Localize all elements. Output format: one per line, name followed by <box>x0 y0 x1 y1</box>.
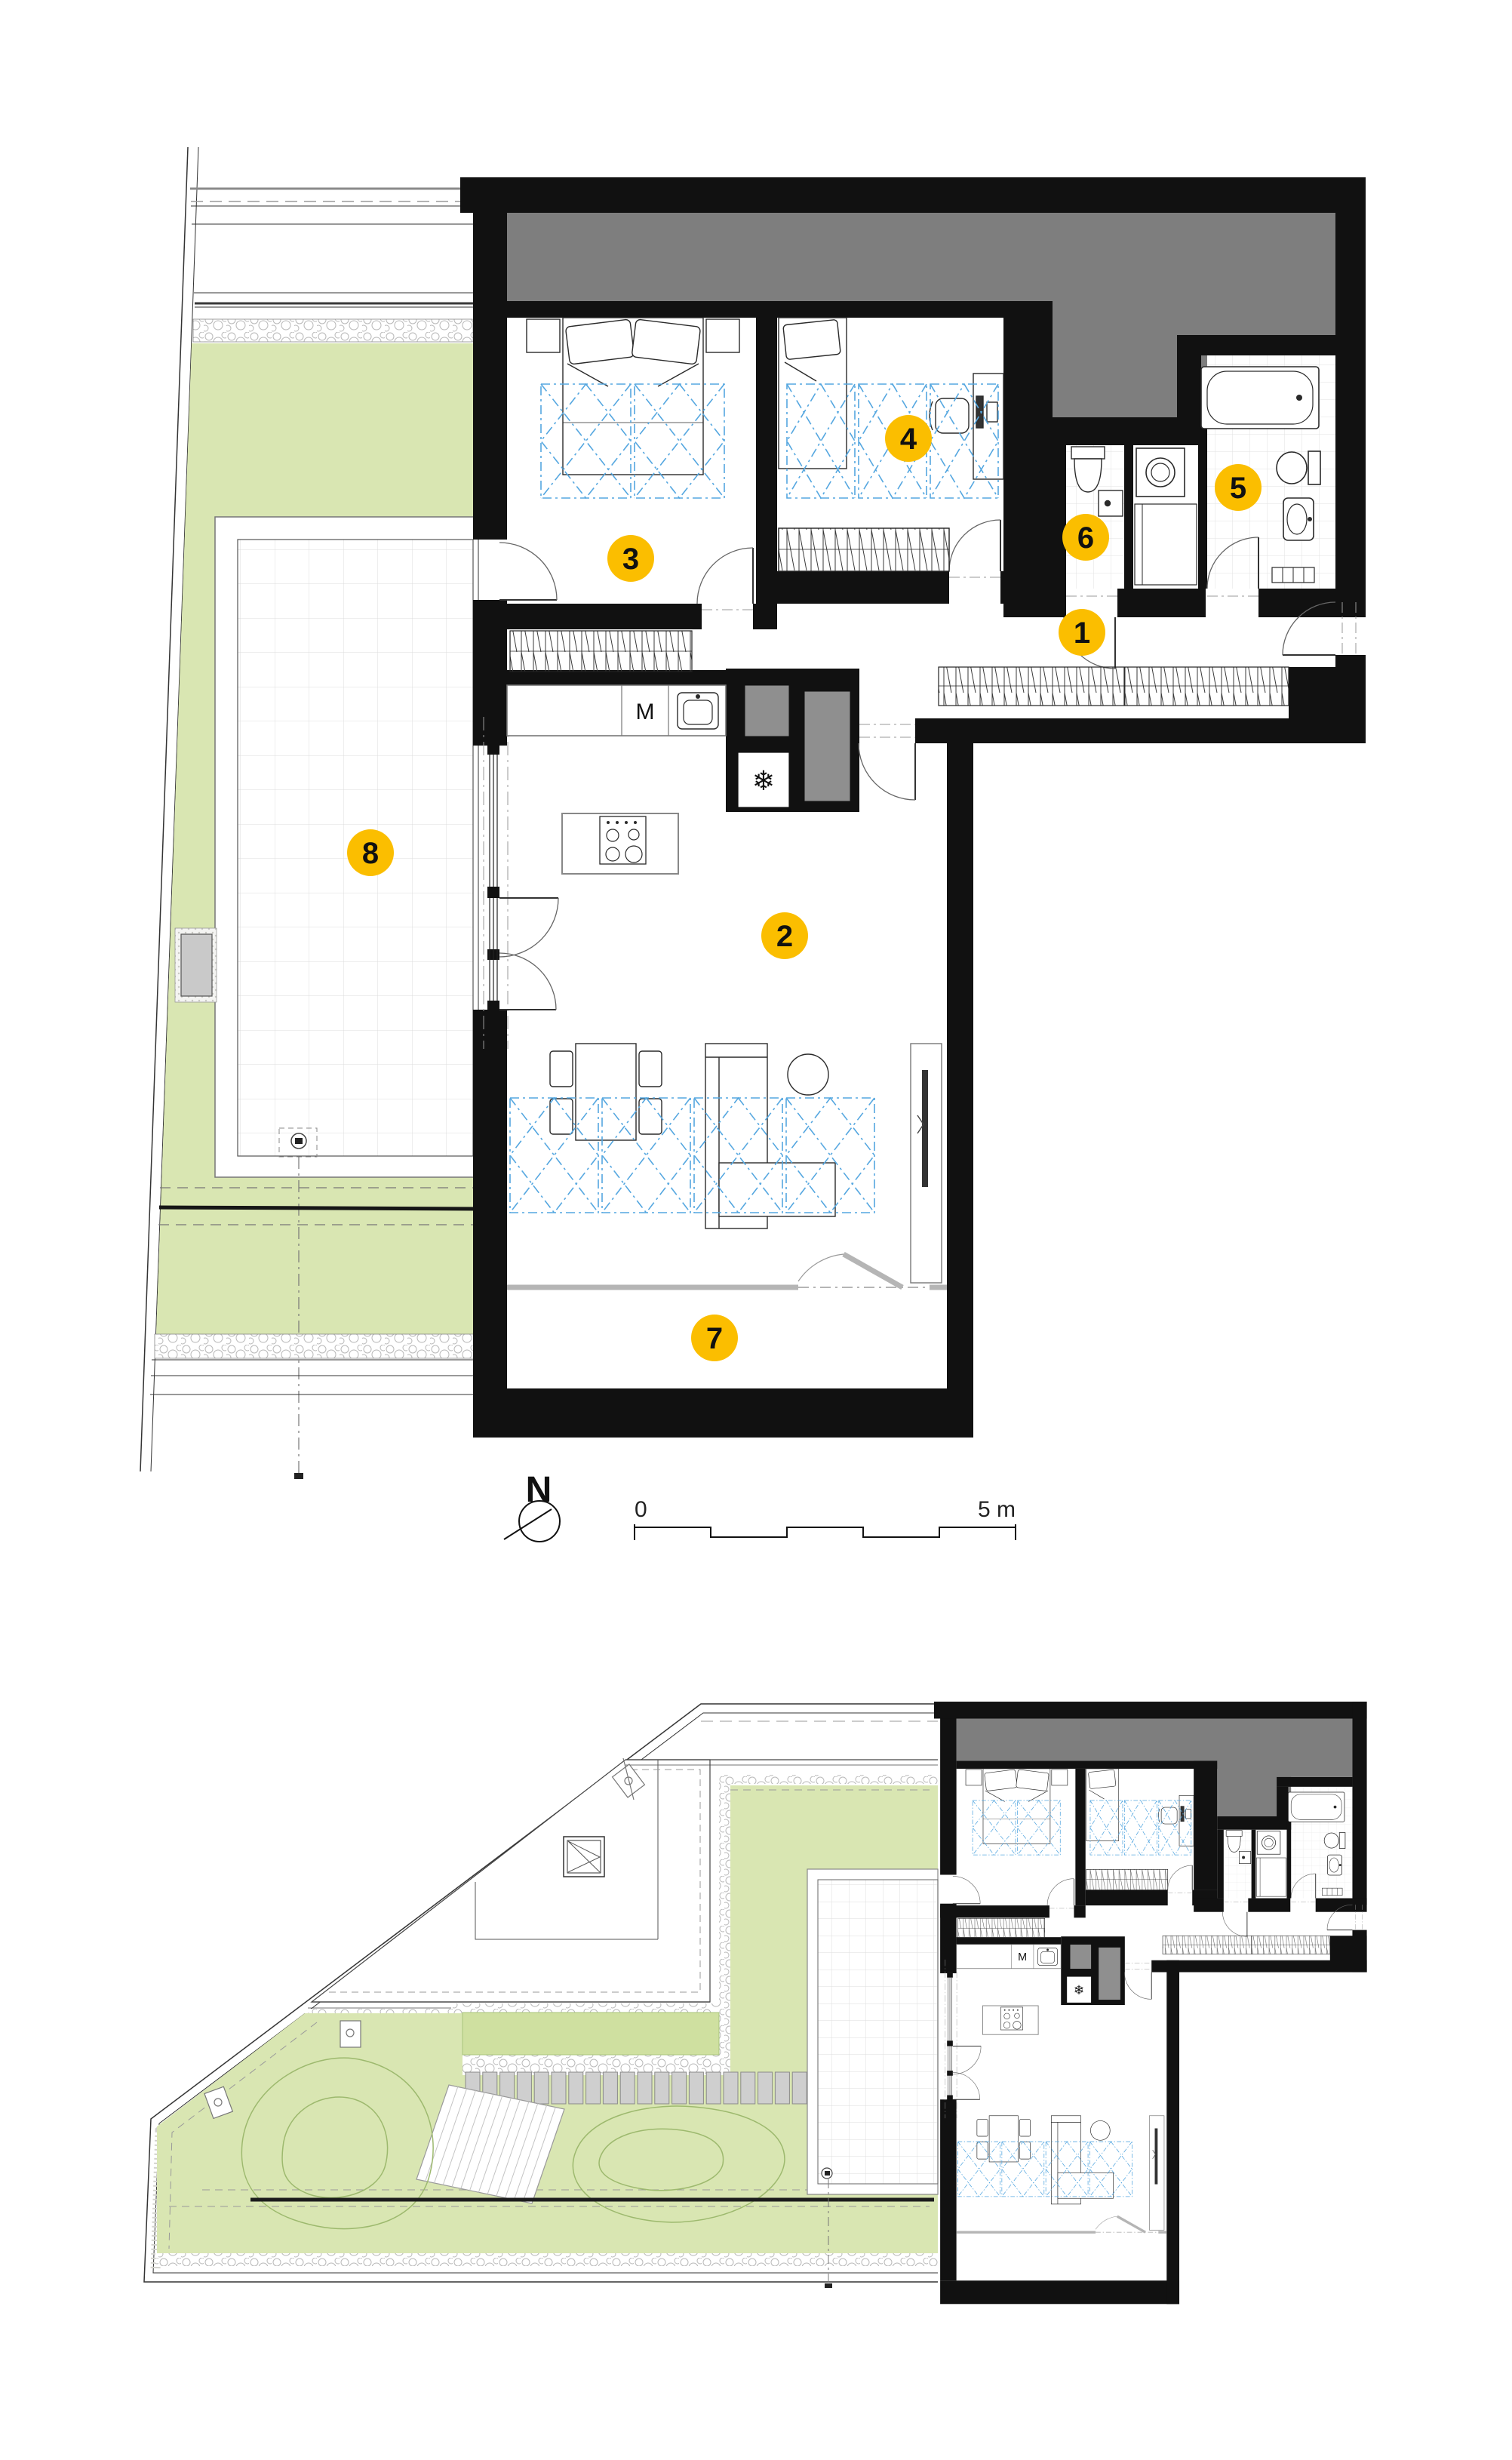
tv <box>922 1070 928 1187</box>
room-label-3: 3 <box>607 535 654 582</box>
skylight <box>564 1837 604 1877</box>
scale-bar: 0 5 m <box>635 1497 1016 1540</box>
living-room <box>550 1044 942 1283</box>
mini-apartment-plan <box>934 1702 1367 2304</box>
kitchen-island <box>562 813 678 874</box>
washing-machine <box>1136 448 1185 497</box>
chair <box>639 1051 662 1087</box>
sofa-chaise <box>719 1163 835 1216</box>
chair <box>550 1051 573 1087</box>
svg-text:2: 2 <box>776 920 793 953</box>
room-label-4: 4 <box>885 415 932 462</box>
nightstand <box>527 319 560 352</box>
appliance-label: M <box>636 700 655 724</box>
bedroom-3 <box>527 318 739 475</box>
dining-table <box>576 1044 636 1140</box>
loggia-edge <box>507 1254 947 1287</box>
gravel-strip-bottom <box>155 1334 478 1358</box>
planter <box>175 928 217 1002</box>
chair <box>550 1099 573 1134</box>
svg-text:5 m: 5 m <box>978 1497 1016 1522</box>
planting-band <box>463 2013 719 2055</box>
room-label-1: 1 <box>1059 609 1105 656</box>
room-label-7: 7 <box>691 1315 738 1361</box>
room-label-2: 2 <box>761 912 808 959</box>
svg-text:4: 4 <box>900 423 917 456</box>
svg-text:0: 0 <box>635 1497 647 1522</box>
site-context-main <box>140 147 478 1479</box>
loggia-door <box>844 1254 902 1287</box>
snowflake-icon: ❄ <box>752 765 775 796</box>
toilet-tank <box>1071 447 1105 459</box>
nightstand <box>706 319 739 352</box>
gravel-strip-top <box>193 319 473 342</box>
bathroom-cabinet <box>1135 504 1197 585</box>
floor-plan-sheet: ❄ <box>0 0 1512 2460</box>
desk-chair <box>936 398 969 433</box>
terrace-room-8 <box>215 517 478 1177</box>
svg-text:8: 8 <box>362 837 379 870</box>
svg-text:5: 5 <box>1230 472 1246 505</box>
north-arrow-icon: N <box>504 1470 560 1542</box>
kitchen: M <box>507 685 726 874</box>
wardrobe <box>779 528 949 571</box>
toilet-tank <box>1308 451 1320 484</box>
apartment-plan: ❄ <box>460 177 1366 1438</box>
side-table <box>788 1054 828 1095</box>
plan-drawing: ❄ <box>0 0 1512 2460</box>
room-label-5: 5 <box>1215 464 1262 511</box>
svg-text:6: 6 <box>1077 521 1094 555</box>
svg-text:7: 7 <box>706 1322 723 1355</box>
svg-text:1: 1 <box>1074 617 1090 650</box>
wardrobe <box>939 667 1289 706</box>
toilet <box>1277 452 1307 484</box>
site-plan <box>144 1704 938 2288</box>
left-wall-glazing <box>490 755 497 1001</box>
room-label-6: 6 <box>1062 514 1109 561</box>
room-label-8: 8 <box>347 829 394 876</box>
svg-text:3: 3 <box>622 543 639 576</box>
